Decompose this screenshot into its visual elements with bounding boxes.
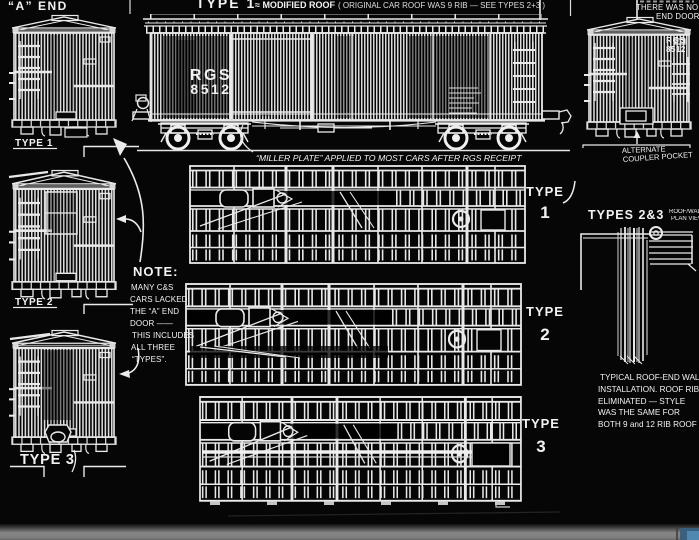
svg-text:WAS THE SAME FOR: WAS THE SAME FOR xyxy=(598,408,680,417)
svg-text:3: 3 xyxy=(536,437,545,456)
svg-text:8512: 8512 xyxy=(666,45,686,54)
svg-text:TYPE: TYPE xyxy=(526,304,564,319)
svg-text:ALL THREE: ALL THREE xyxy=(131,343,175,352)
svg-text:1: 1 xyxy=(540,203,549,222)
svg-text:TYPE 2: TYPE 2 xyxy=(15,297,53,308)
svg-text:ROOF/WALL: ROOF/WALL xyxy=(669,209,699,215)
svg-text:TYPE 1: TYPE 1 xyxy=(15,138,53,149)
svg-text:TYPE: TYPE xyxy=(522,416,560,431)
svg-text:PLAN VIEW: PLAN VIEW xyxy=(671,216,699,222)
svg-text:2: 2 xyxy=(540,325,549,344)
svg-text:“A” END: “A” END xyxy=(8,0,68,13)
svg-text:ELIMINATED — STYLE: ELIMINATED — STYLE xyxy=(598,397,686,406)
svg-text:NOTE:: NOTE: xyxy=(133,264,178,279)
svg-text:THERE WAS NO: THERE WAS NO xyxy=(636,3,698,12)
svg-text:≈ MODIFIED ROOF: ≈ MODIFIED ROOF xyxy=(255,0,335,10)
svg-text:“TYPES”.: “TYPES”. xyxy=(132,355,167,364)
svg-text:END DOOR: END DOOR xyxy=(656,12,699,21)
svg-text:TYPE: TYPE xyxy=(526,184,564,199)
svg-text:MANY C&S: MANY C&S xyxy=(131,283,173,292)
svg-text:THIS INCLUDES: THIS INCLUDES xyxy=(132,331,194,340)
svg-text:TYPE 1: TYPE 1 xyxy=(196,0,256,11)
svg-text:THE “A” END: THE “A” END xyxy=(130,307,179,316)
svg-text:“MILLER PLATE” APPLIED TO MOST: “MILLER PLATE” APPLIED TO MOST CARS AFTE… xyxy=(256,153,522,163)
svg-text:BOTH 9 and 12 RIB ROOF: BOTH 9 and 12 RIB ROOF xyxy=(598,420,697,429)
svg-text:8512: 8512 xyxy=(190,81,231,97)
svg-text:TYPES 2&3: TYPES 2&3 xyxy=(588,208,664,222)
svg-text:( ORIGINAL CAR ROOF WAS 9 RIB: ( ORIGINAL CAR ROOF WAS 9 RIB — SEE TYPE… xyxy=(338,1,545,10)
svg-text:RGS: RGS xyxy=(666,36,686,45)
svg-text:TYPICAL ROOF-END WALL: TYPICAL ROOF-END WALL xyxy=(600,373,699,382)
svg-text:TYPE 3: TYPE 3 xyxy=(20,452,75,468)
svg-text:CARS LACKED: CARS LACKED xyxy=(130,295,188,304)
svg-text:INSTALLATION. ROOF RIB: INSTALLATION. ROOF RIB xyxy=(598,385,699,394)
svg-text:DOOR ——: DOOR —— xyxy=(130,319,173,328)
